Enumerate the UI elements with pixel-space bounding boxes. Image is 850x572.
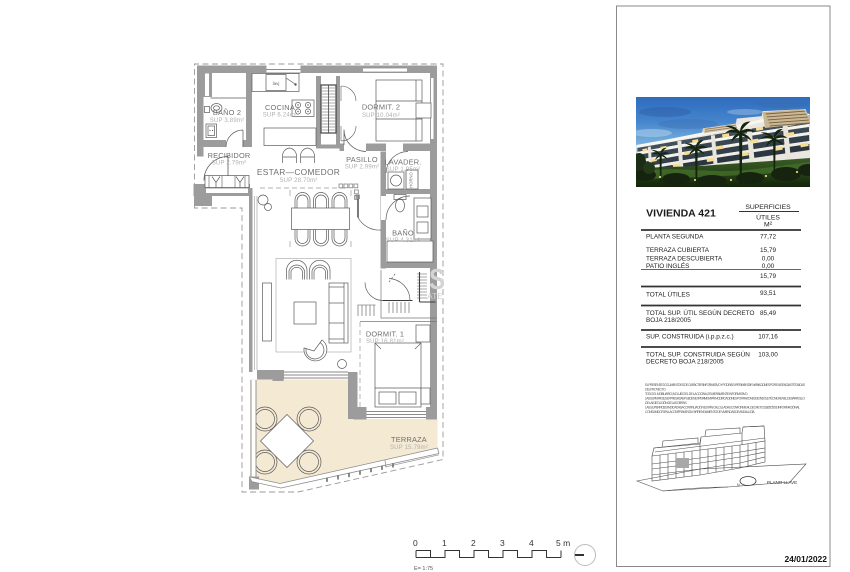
svg-text:lavj: lavj: [273, 81, 280, 86]
svg-text:BAÑO: BAÑO: [392, 229, 414, 238]
svg-text:ÚTILES: ÚTILES: [756, 213, 780, 222]
svg-text:HORNO: HORNO: [409, 171, 414, 187]
svg-text:TERRAZA DESCUBIERTA: TERRAZA DESCUBIERTA: [646, 256, 723, 263]
svg-text:E= 1:75: E= 1:75: [414, 566, 433, 572]
svg-text:15,79: 15,79: [760, 247, 776, 254]
svg-text:ATE: ATE: [427, 291, 443, 301]
svg-text:TOTAL SUP. CONSTRUIDA SEGÚN: TOTAL SUP. CONSTRUIDA SEGÚN: [646, 350, 750, 359]
svg-text:RECIBIDOR: RECIBIDOR: [208, 151, 251, 160]
svg-text:DECRETO BOJA 218/2005: DECRETO BOJA 218/2005: [646, 359, 724, 366]
svg-text:SUP 2.79m²: SUP 2.79m²: [212, 161, 247, 167]
svg-text:85,49: 85,49: [760, 310, 776, 317]
svg-text:TERRAZA: TERRAZA: [391, 435, 427, 444]
svg-text:VIVIENDA 421: VIVIENDA 421: [646, 208, 716, 220]
svg-text:EL PRESENTE DOCUMENTO ES DE CA: EL PRESENTE DOCUMENTO ES DE CARÁCTER INF…: [645, 382, 806, 387]
svg-text:PLANTA SEGUNDA: PLANTA SEGUNDA: [646, 234, 704, 241]
svg-text:BAÑO 2: BAÑO 2: [213, 108, 241, 117]
svg-text:DEL PROYECTO.: DEL PROYECTO.: [645, 388, 666, 392]
svg-text:107,16: 107,16: [758, 334, 778, 341]
svg-text:TERRAZA CUBIERTA: TERRAZA CUBIERTA: [646, 247, 710, 254]
svg-text:PATIO INGLÉS: PATIO INGLÉS: [646, 261, 689, 270]
svg-text:SUP 10.04m²: SUP 10.04m²: [362, 113, 400, 119]
svg-text:SUP. CONSTRUIDA (i.p.p.z.c.): SUP. CONSTRUIDA (i.p.p.z.c.): [646, 334, 734, 341]
svg-text:1: 1: [442, 538, 447, 548]
svg-text:0,00: 0,00: [762, 256, 775, 263]
svg-text:LAS SUPERFICIES INDICADAS A CO: LAS SUPERFICIES INDICADAS A CONTINUACIÓN…: [645, 405, 800, 410]
svg-text:SUP 15.79m²: SUP 15.79m²: [390, 445, 428, 451]
svg-text:SUP 3.89m²: SUP 3.89m²: [210, 118, 245, 124]
svg-text:COCINA: COCINA: [265, 103, 295, 112]
svg-text:TOTAL SUP. ÚTIL SEGÚN DECRETO: TOTAL SUP. ÚTIL SEGÚN DECRETO: [646, 308, 754, 317]
svg-text:2: 2: [471, 538, 476, 548]
svg-text:24/01/2022: 24/01/2022: [784, 554, 827, 564]
svg-text:SUP 6.24m²: SUP 6.24m²: [263, 113, 298, 119]
svg-text:5 m: 5 m: [556, 538, 570, 548]
svg-text:DORMIT. 1: DORMIT. 1: [366, 330, 404, 339]
svg-text:4: 4: [529, 538, 534, 548]
svg-text:CONSUMIDOR EN LA COMPRAVENTA Y: CONSUMIDOR EN LA COMPRAVENTA Y ARRENDAMI…: [645, 410, 755, 414]
svg-text:SUP 2.99m²: SUP 2.99m²: [345, 165, 380, 171]
svg-text:ESTAR—COMEDOR: ESTAR—COMEDOR: [257, 167, 340, 177]
svg-text:0: 0: [413, 538, 418, 548]
svg-text:103,00: 103,00: [758, 352, 778, 359]
svg-text:SUP 16.81m²: SUP 16.81m²: [366, 339, 404, 345]
svg-text:SUP 4.31m²: SUP 4.31m²: [386, 238, 421, 244]
svg-text:TODO EL MOBILIARIO, INCLUIDO E: TODO EL MOBILIARIO, INCLUIDO EL DE LA CO…: [645, 392, 748, 396]
svg-text:LAS SUPERFICIES EXPRESADAS PUE: LAS SUPERFICIES EXPRESADAS PUEDEN EXPERI…: [645, 396, 805, 401]
svg-text:SUP 1.95m²: SUP 1.95m²: [386, 167, 421, 173]
svg-text:TOTAL ÚTILES: TOTAL ÚTILES: [646, 290, 690, 299]
svg-text:93,51: 93,51: [760, 290, 776, 297]
svg-text:SUPERFICIES: SUPERFICIES: [745, 204, 791, 211]
svg-text:0,00: 0,00: [762, 263, 775, 270]
svg-text:DORMIT. 2: DORMIT. 2: [362, 103, 400, 112]
svg-text:3: 3: [500, 538, 505, 548]
svg-text:15,79: 15,79: [760, 273, 776, 280]
svg-text:BOJA 218/2005: BOJA 218/2005: [646, 317, 691, 324]
svg-text:DE LA EJECUCIÓN DE LAS OBRAS.: DE LA EJECUCIÓN DE LAS OBRAS.: [645, 400, 687, 405]
svg-text:77,72: 77,72: [760, 234, 776, 241]
svg-text:PASILLO: PASILLO: [346, 155, 378, 164]
svg-text:PLANO LLAVE: PLANO LLAVE: [767, 480, 797, 485]
svg-text:LAVADER.: LAVADER.: [384, 158, 421, 167]
svg-text:SUP 28.70m²: SUP 28.70m²: [279, 178, 317, 184]
svg-text:M²: M²: [764, 222, 773, 229]
